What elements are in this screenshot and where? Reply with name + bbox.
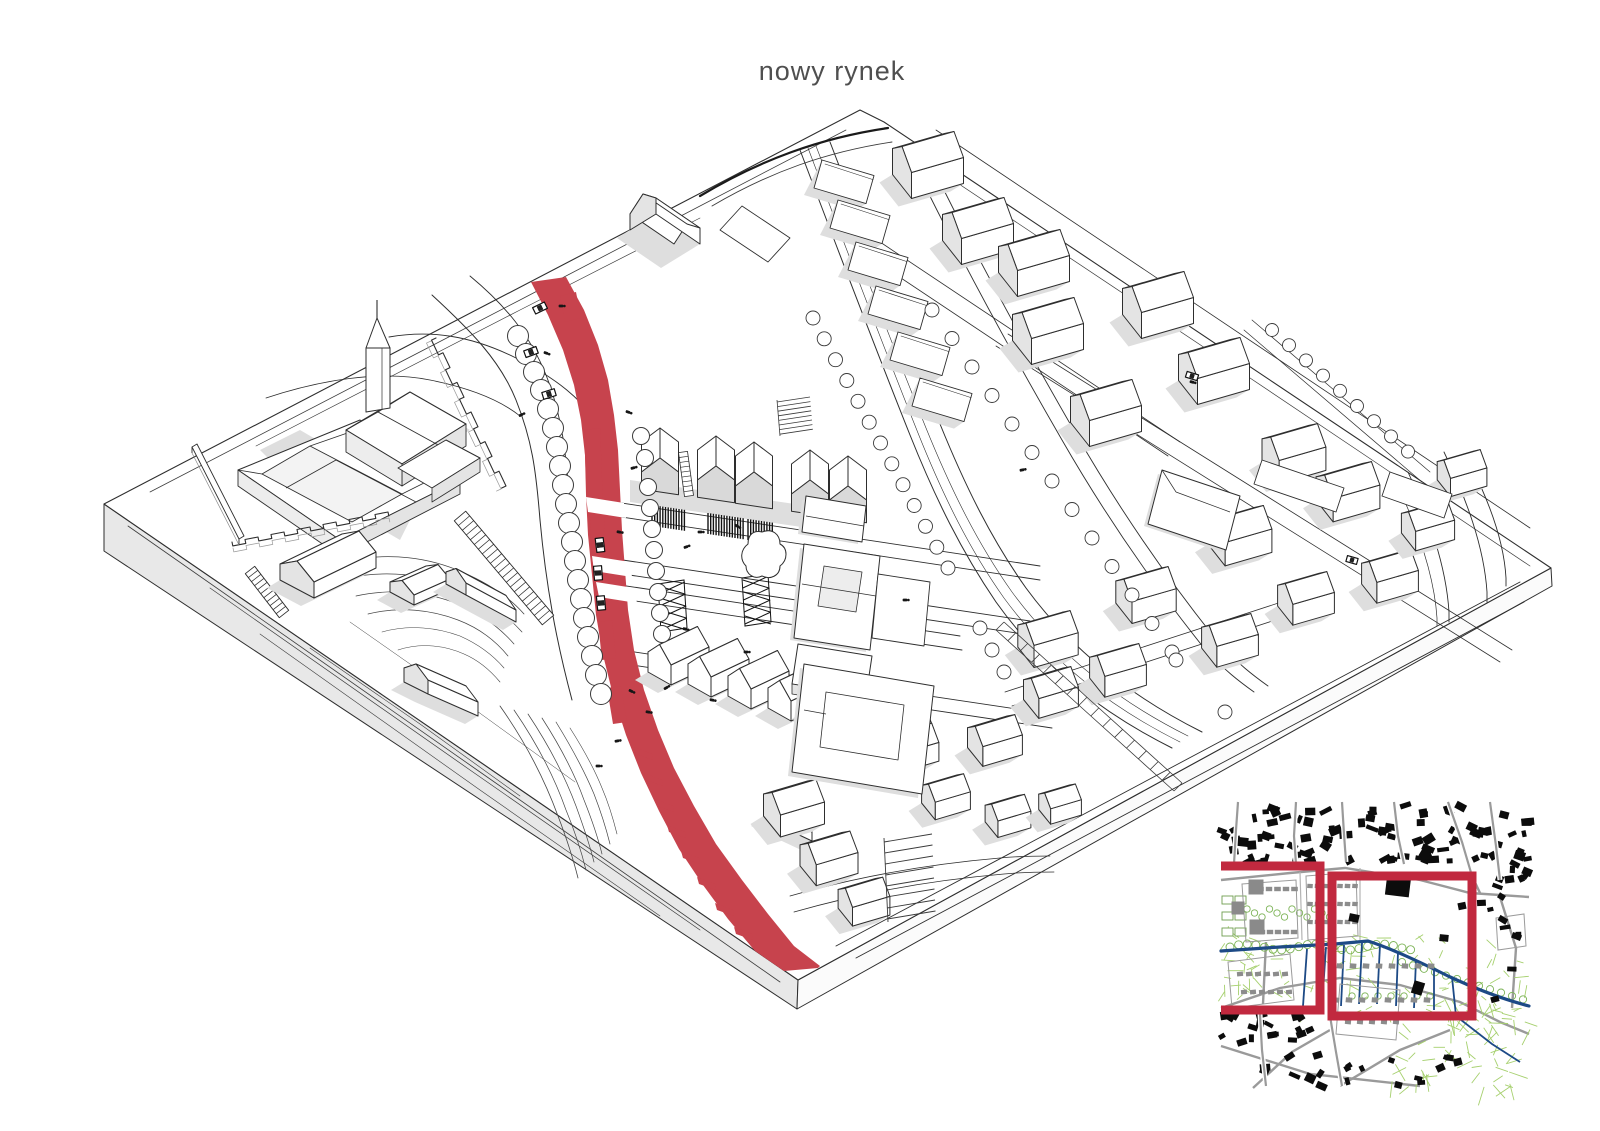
svg-text:nowy rynek: nowy rynek (759, 56, 906, 86)
